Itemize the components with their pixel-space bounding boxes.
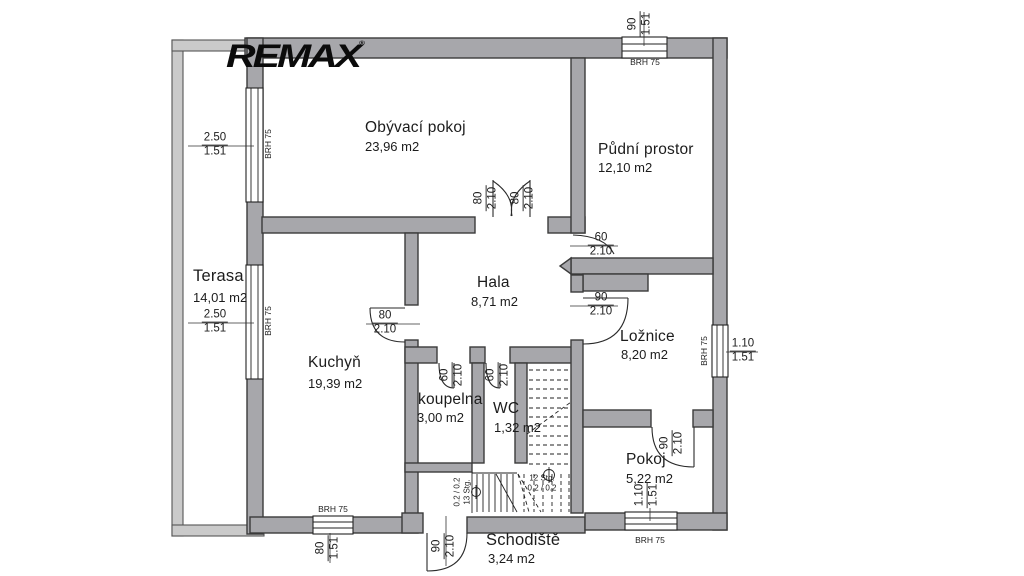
door-dim-double-right: 802.10 [510, 185, 537, 211]
window-dim-attic: 901.51 [627, 11, 654, 37]
room-area-wc: 1,32 m2 [494, 420, 541, 435]
brh-label-living-room: BRH 75 [263, 129, 273, 159]
room-label-attic: Půdní prostor [598, 141, 694, 159]
brh-label-attic: BRH 75 [630, 57, 660, 67]
room-area-staircase: 3,24 m2 [488, 551, 535, 566]
door-dim-double-left: 802.10 [473, 185, 500, 211]
door-dim-bedroom: 902.10 [588, 292, 614, 319]
room-area-hall: 8,71 m2 [471, 294, 518, 309]
floor-plan: REMAX® Obývací pokoj 23,96 m2 Půdní pros… [0, 0, 1024, 576]
room-label-staircase: Schodiště [486, 531, 560, 550]
window-dim-living-room: 2.501.51 [202, 132, 228, 159]
door-dim-kitchen: 802.10 [372, 310, 398, 337]
door-dim-bathroom: 602.10 [439, 362, 466, 388]
stair-note-up: 12 Stg.0.2 / 0.2 [528, 473, 557, 492]
window-kitchen-left [246, 265, 263, 379]
room-area-attic: 12,10 m2 [598, 160, 652, 175]
window-kitchen-bottom [313, 516, 353, 534]
room-label-living-room: Obývací pokoj [365, 119, 466, 137]
window-attic-top [622, 37, 667, 58]
brh-label-kitchen-left: BRH 75 [263, 306, 273, 336]
window-dim-kitchen-bottom: 801.51 [315, 535, 342, 561]
window-room-bottom [625, 512, 677, 530]
door-dim-wc: 602.10 [485, 362, 512, 388]
registered-mark: ® [359, 39, 365, 46]
floor-plan-drawing [0, 0, 1024, 576]
brh-label-kitchen-bottom: BRH 75 [318, 504, 348, 514]
brh-label-bedroom: BRH 75 [699, 336, 709, 366]
room-label-kitchen: Kuchyň [308, 354, 361, 372]
door-dim-attic: 602.10 [588, 232, 614, 259]
door-dim-entrance: 902.10 [431, 533, 458, 559]
room-label-bathroom: koupelna [418, 391, 483, 409]
room-label-terrace: Terasa [193, 267, 244, 286]
room-label-hall: Hala [477, 274, 510, 292]
remax-logo: REMAX® [226, 40, 365, 73]
room-area-bedroom: 8,20 m2 [621, 347, 668, 362]
room-area-bathroom: 3,00 m2 [417, 410, 464, 425]
room-label-wc: WC [493, 400, 519, 418]
stair-note-down: 0.2 / 0.213 Stg. [452, 478, 471, 507]
window-dim-bedroom: 1.101.51 [730, 338, 756, 365]
room-area-kitchen: 19,39 m2 [308, 376, 362, 391]
window-dim-kitchen-left: 2.501.51 [202, 309, 228, 336]
room-area-living-room: 23,96 m2 [365, 139, 419, 154]
window-living-room [246, 88, 263, 202]
window-bedroom-right [712, 325, 728, 377]
room-area-terrace: 14,01 m2 [193, 290, 247, 305]
room-label-bedroom: Ložnice [620, 328, 675, 346]
brh-label-room-bottom: BRH 75 [635, 535, 665, 545]
window-dim-room-bottom: 1.101.51 [634, 482, 661, 508]
door-dim-room: 902.10 [659, 430, 686, 456]
